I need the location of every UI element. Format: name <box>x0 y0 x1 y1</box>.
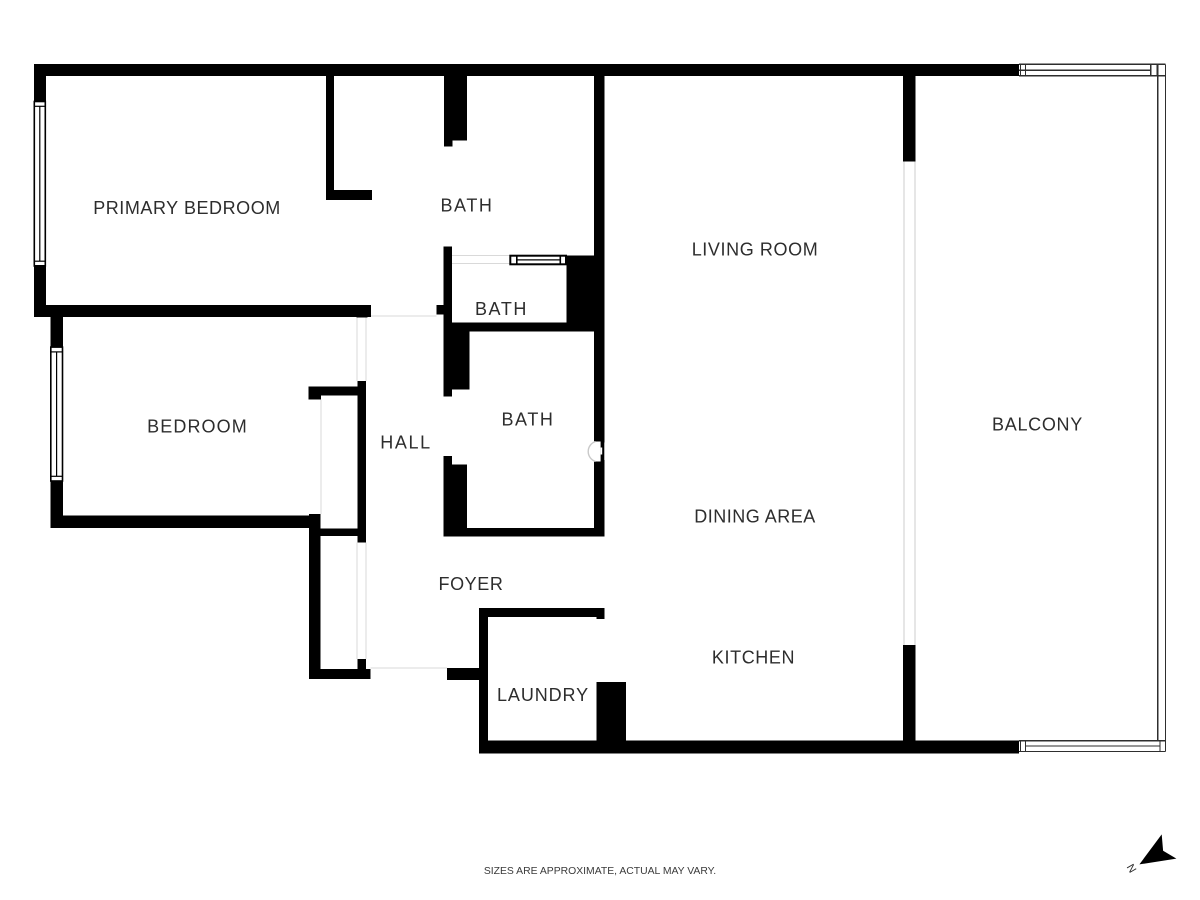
svg-text:BATH: BATH <box>440 196 493 216</box>
svg-text:KITCHEN: KITCHEN <box>712 648 795 668</box>
svg-text:PRIMARY BEDROOM: PRIMARY BEDROOM <box>93 198 281 218</box>
svg-text:BALCONY: BALCONY <box>992 415 1083 435</box>
svg-text:SIZES ARE APPROXIMATE, ACTUAL: SIZES ARE APPROXIMATE, ACTUAL MAY VARY. <box>484 866 716 877</box>
svg-text:BATH: BATH <box>475 299 528 319</box>
svg-text:HALL: HALL <box>380 433 431 453</box>
svg-text:LIVING ROOM: LIVING ROOM <box>692 240 819 260</box>
svg-text:DINING AREA: DINING AREA <box>694 507 816 527</box>
svg-text:LAUNDRY: LAUNDRY <box>497 685 589 705</box>
svg-text:FOYER: FOYER <box>438 574 503 594</box>
svg-text:BEDROOM: BEDROOM <box>147 417 248 437</box>
svg-text:BATH: BATH <box>501 410 554 430</box>
